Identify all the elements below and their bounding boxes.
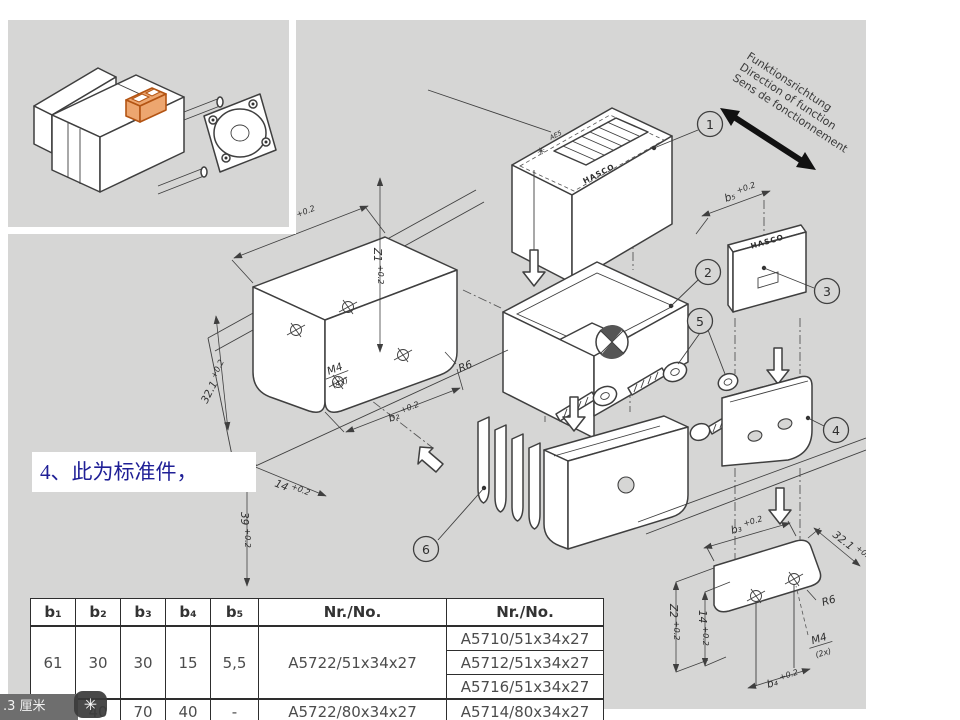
star-cursor-icon: ✳ bbox=[74, 691, 107, 718]
part-ribbed-retainer bbox=[478, 416, 688, 549]
dim-label-14-right: 14+0.2 bbox=[696, 610, 710, 646]
svg-text:b₅+0.2: b₅+0.2 bbox=[722, 180, 758, 205]
table-header-cell: b₄ bbox=[166, 599, 211, 627]
assembly-arrow-down-3 bbox=[769, 488, 791, 524]
svg-text:R6: R6 bbox=[457, 358, 475, 374]
table-header-cell: Nr./No. bbox=[447, 599, 604, 627]
table-cell: A5712/51x34x27 bbox=[447, 651, 604, 675]
star-glyph: ✳ bbox=[84, 695, 97, 714]
part-cover-plate: HASCO bbox=[728, 225, 806, 312]
svg-text:32.1+0.2: 32.1+0.2 bbox=[830, 527, 866, 566]
svg-text:32.1+0.2: 32.1+0.2 bbox=[197, 358, 230, 405]
table-row: 90 40 70 40 - A5722/80x34x27 A5714/80x34… bbox=[31, 699, 604, 720]
svg-text:5: 5 bbox=[696, 314, 704, 329]
svg-text:3: 3 bbox=[823, 284, 831, 299]
svg-text:b₃+0.2: b₃+0.2 bbox=[729, 514, 765, 537]
parts-table: b₁ b₂ b₃ b₄ b₅ Nr./No. Nr./No. 61 30 30 … bbox=[30, 598, 604, 720]
part-mounting-bracket bbox=[722, 376, 812, 466]
dim-label-b3: b₃+0.2 bbox=[729, 514, 765, 537]
table-cell: 40 bbox=[166, 699, 211, 720]
svg-text:39+0.2: 39+0.2 bbox=[238, 512, 252, 548]
table-header-cell: Nr./No. bbox=[259, 599, 447, 627]
table-cell: - bbox=[211, 699, 259, 720]
assembly-arrow-down-2 bbox=[767, 348, 789, 384]
dim-label-r6-right: R6 bbox=[820, 593, 837, 609]
dim-label-r6: R6 bbox=[457, 358, 475, 374]
table-cell: 61 bbox=[31, 626, 76, 699]
svg-text:14+0.2: 14+0.2 bbox=[273, 476, 311, 502]
inset-assembled-view-panel bbox=[8, 20, 296, 234]
dim-label-321: 32.1+0.2 bbox=[197, 358, 230, 405]
table-cell: A5714/80x34x27 bbox=[447, 699, 604, 720]
measurement-status-bar: .3 厘米 bbox=[0, 694, 78, 720]
b5-dimension: b₅+0.2 bbox=[696, 180, 770, 234]
table-cell: 30 bbox=[76, 626, 121, 699]
callout-6: 6 bbox=[414, 486, 487, 562]
table-header-cell: b₁ bbox=[31, 599, 76, 627]
table-header-cell: b₃ bbox=[121, 599, 166, 627]
dim-label-321-right: 32.1+0.2 bbox=[830, 527, 866, 566]
table-cell: A5722/80x34x27 bbox=[259, 699, 447, 720]
dim-label-z2: Z2+0.2 bbox=[667, 603, 681, 640]
svg-text:4: 4 bbox=[832, 423, 840, 438]
svg-text:6: 6 bbox=[422, 542, 430, 557]
table-row: 61 30 30 15 5,5 A5722/51x34x27 A5710/51x… bbox=[31, 626, 604, 651]
measurement-text: .3 厘米 bbox=[3, 699, 46, 714]
table-cell: A5722/51x34x27 bbox=[259, 626, 447, 699]
dim-label-m4-2x: M4 (2x) bbox=[806, 630, 836, 661]
table-cell: A5716/51x34x27 bbox=[447, 675, 604, 700]
table-header-row: b₁ b₂ b₃ b₄ b₅ Nr./No. Nr./No. bbox=[31, 599, 604, 627]
svg-text:(2x): (2x) bbox=[814, 646, 832, 659]
table-cell: A5710/51x34x27 bbox=[447, 626, 604, 651]
mould-clamp-plate bbox=[204, 94, 276, 172]
svg-text:14+0.2: 14+0.2 bbox=[696, 610, 710, 646]
svg-text:b₄+0.2: b₄+0.2 bbox=[765, 668, 801, 691]
annotation-text: 4、此为标准件， bbox=[40, 460, 198, 484]
svg-text:1: 1 bbox=[706, 117, 714, 132]
callout-2: 2 bbox=[669, 260, 721, 309]
direction-of-function-note: Funktionsrichtung Direction of function … bbox=[720, 50, 865, 170]
svg-text:R6: R6 bbox=[820, 593, 837, 609]
svg-text:M4: M4 bbox=[810, 631, 829, 647]
assembled-mould-drawing bbox=[8, 20, 289, 227]
dim-label-14: 14+0.2 bbox=[273, 476, 311, 502]
dim-label-39: 39+0.2 bbox=[238, 512, 252, 548]
svg-text:2: 2 bbox=[704, 265, 712, 280]
table-cell: 30 bbox=[121, 626, 166, 699]
left-dimension-view: b₁+0.2 Z1+0.2 32.1+0.2 39+0.2 M4 (4x) b₂… bbox=[197, 178, 508, 586]
table-header-cell: b₂ bbox=[76, 599, 121, 627]
table-cell: 5,5 bbox=[211, 626, 259, 699]
slide-page: Funktionsrichtung Direction of function … bbox=[0, 0, 960, 720]
table-header-cell: b₅ bbox=[211, 599, 259, 627]
dim-label-b4: b₄+0.2 bbox=[765, 668, 801, 691]
table-cell: 70 bbox=[121, 699, 166, 720]
dim-label-b5: b₅+0.2 bbox=[722, 180, 758, 205]
annotation-text-box: 4、此为标准件， bbox=[32, 452, 256, 492]
svg-text:Z2+0.2: Z2+0.2 bbox=[667, 603, 681, 640]
part-housing-frame bbox=[503, 262, 688, 438]
assembly-arrow-nw bbox=[418, 447, 443, 472]
table-cell: 15 bbox=[166, 626, 211, 699]
